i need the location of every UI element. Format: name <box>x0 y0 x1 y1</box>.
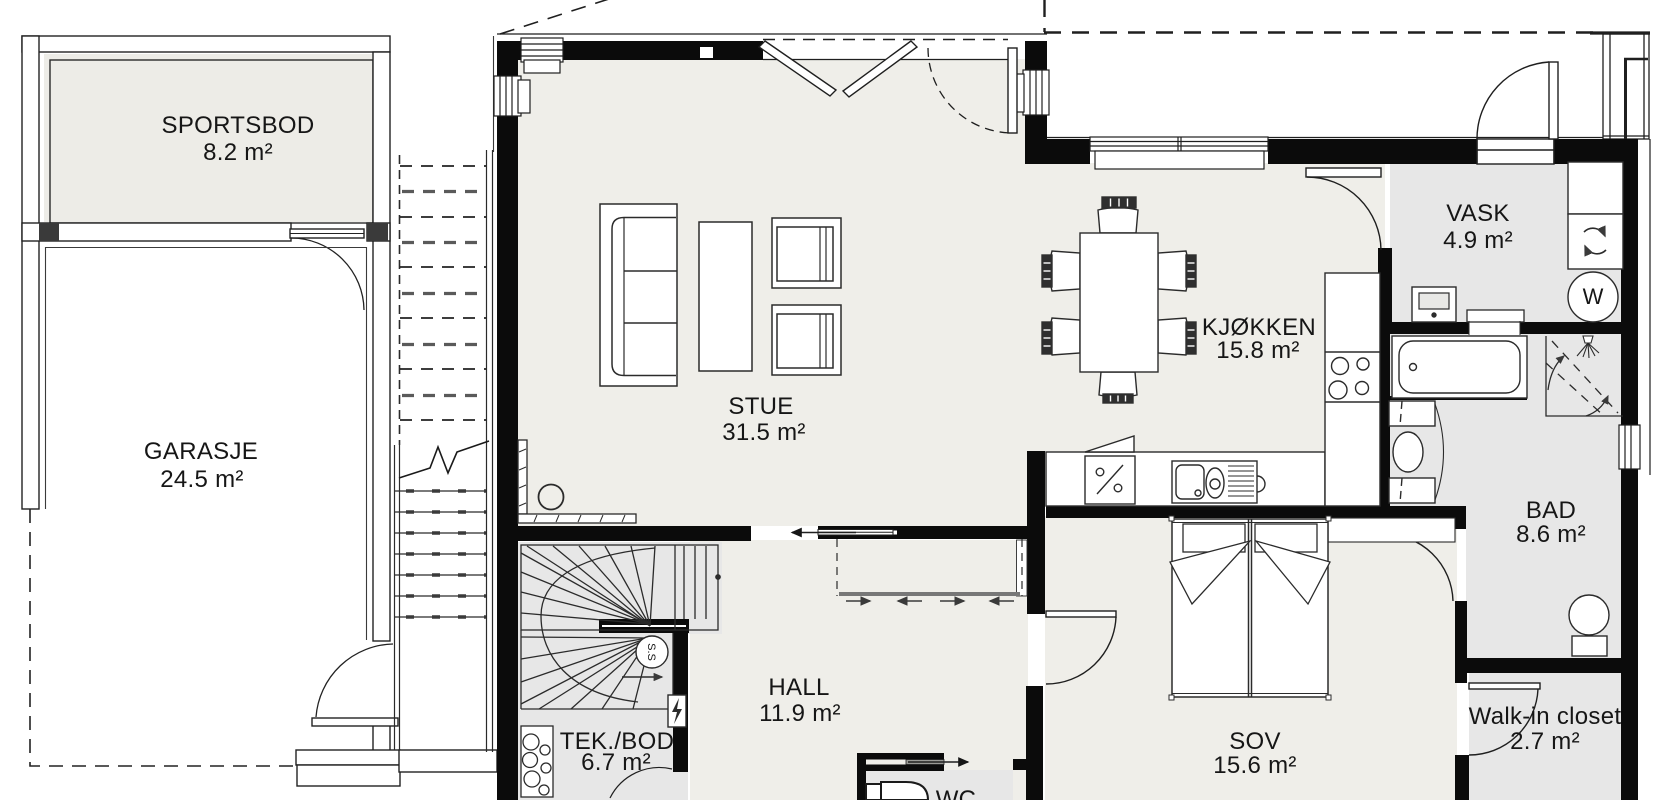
svg-text:GARASJE: GARASJE <box>144 438 258 465</box>
svg-text:SPORTSBOD: SPORTSBOD <box>162 112 315 139</box>
svg-text:8.2 m²: 8.2 m² <box>203 139 273 166</box>
svg-text:SOV: SOV <box>1229 728 1281 755</box>
svg-text:WC: WC <box>936 786 977 800</box>
svg-text:8.6 m²: 8.6 m² <box>1516 521 1586 548</box>
svg-text:Walk-in closet: Walk-in closet <box>1469 703 1622 730</box>
svg-text:VASK: VASK <box>1446 200 1509 227</box>
svg-text:31.5 m²: 31.5 m² <box>722 419 805 446</box>
svg-text:2.7 m²: 2.7 m² <box>1510 728 1580 755</box>
svg-text:24.5 m²: 24.5 m² <box>160 466 243 493</box>
svg-text:STUE: STUE <box>728 393 793 420</box>
svg-text:BAD: BAD <box>1526 497 1576 524</box>
svg-text:11.9 m²: 11.9 m² <box>759 700 841 727</box>
svg-text:W: W <box>1583 284 1604 309</box>
svg-text:15.8 m²: 15.8 m² <box>1216 337 1299 364</box>
svg-text:6.7 m²: 6.7 m² <box>581 749 651 776</box>
svg-text:HALL: HALL <box>768 674 829 701</box>
svg-text:15.6 m²: 15.6 m² <box>1213 752 1296 779</box>
svg-text:4.9 m²: 4.9 m² <box>1443 227 1513 254</box>
svg-text:S.S: S.S <box>645 643 657 661</box>
